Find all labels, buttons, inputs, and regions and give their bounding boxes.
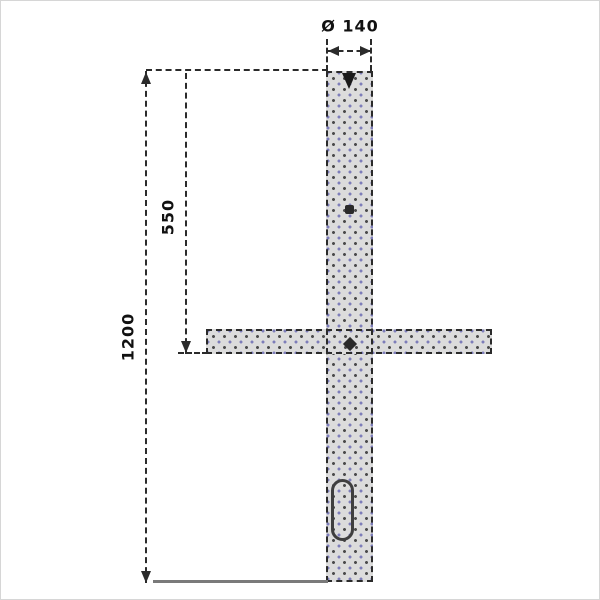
top-witness-line bbox=[146, 69, 328, 71]
arrowhead-right-icon bbox=[360, 46, 371, 56]
fixing-pin-icon bbox=[342, 73, 356, 89]
dimension-label-total-height: 1200 bbox=[119, 313, 138, 362]
rail-witness-line bbox=[178, 352, 208, 354]
upper-span-dimension-line bbox=[185, 73, 187, 354]
mounting-slot bbox=[331, 479, 354, 541]
fixing-point-icon bbox=[345, 205, 354, 214]
arrowhead-down-icon bbox=[141, 571, 151, 583]
dimension-label-diameter: Ø 140 bbox=[321, 17, 379, 36]
technical-drawing: Ø 140 1200 550 bbox=[0, 0, 600, 600]
arrowhead-up-icon bbox=[141, 72, 151, 84]
post-left-edge-through-rail bbox=[326, 329, 328, 354]
dimension-label-upper-span: 550 bbox=[159, 199, 178, 235]
base-reference-line bbox=[153, 580, 328, 583]
post-right-edge-through-rail bbox=[371, 329, 373, 354]
arrowhead-left-icon bbox=[328, 46, 339, 56]
total-height-dimension-line bbox=[145, 71, 147, 583]
